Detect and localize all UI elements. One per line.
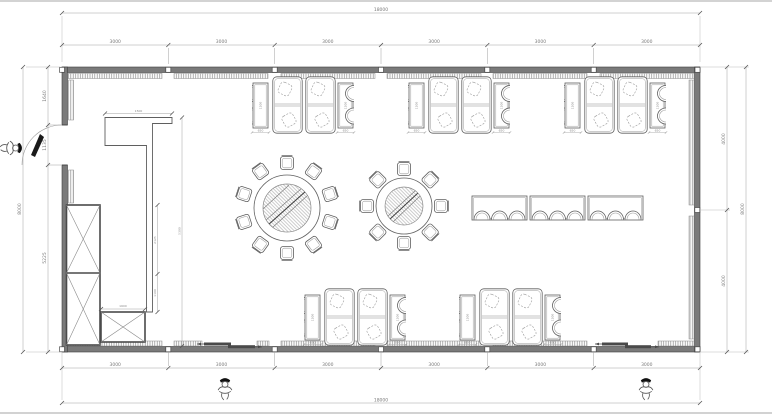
dim-partition-drop: 5300 — [178, 227, 182, 235]
dim-partition-length: 1500 — [135, 109, 143, 113]
low-cabinet — [101, 312, 145, 342]
dim-bay-bottom-4: 3000 — [428, 362, 440, 368]
dim-bay-top-1: 3000 — [109, 39, 121, 45]
dim-right-total: 8000 — [740, 203, 746, 215]
floor-plan-drawing: 1200 650 — [0, 0, 772, 414]
dim-bay-bottom-6: 3000 — [641, 362, 653, 368]
dim-bay-top-6: 3000 — [641, 39, 653, 45]
dim-bay-top-4: 3000 — [428, 39, 440, 45]
floor-plan-page: 1200 650 — [0, 0, 772, 414]
service-partition — [105, 118, 172, 313]
dim-bay-bottom-2: 3000 — [216, 362, 228, 368]
dim-low-cabinet-width: 1600 — [119, 304, 127, 308]
dim-right-seg-2: 4000 — [721, 275, 727, 287]
dim-total-bottom: 18000 — [374, 398, 388, 404]
wall-left-upper — [62, 67, 68, 125]
booth-row-bottom — [303, 289, 562, 346]
dim-bay-bottom-5: 3000 — [535, 362, 547, 368]
dim-cabinet-upper: 2125 — [153, 236, 157, 244]
booth-row-top — [251, 77, 667, 134]
dim-left-seg-2: 1135 — [42, 139, 48, 151]
banquet-table-row — [472, 196, 643, 220]
dim-left-seg-3: 5225 — [42, 252, 48, 264]
dim-right-seg-1: 4000 — [721, 133, 727, 145]
dim-bay-top-3: 3000 — [322, 39, 334, 45]
dim-total-top: 18000 — [374, 7, 388, 13]
dim-bay-bottom-3: 3000 — [322, 362, 334, 368]
tall-cabinet — [67, 205, 101, 345]
dim-bay-top-5: 3000 — [535, 39, 547, 45]
dim-cabinet-lower: 1100 — [153, 289, 157, 297]
dim-bay-top-2: 3000 — [216, 39, 228, 45]
dim-left-seg-1: 1640 — [42, 90, 48, 102]
dim-bay-bottom-1: 3000 — [109, 362, 121, 368]
dim-left-total: 8000 — [17, 203, 23, 215]
